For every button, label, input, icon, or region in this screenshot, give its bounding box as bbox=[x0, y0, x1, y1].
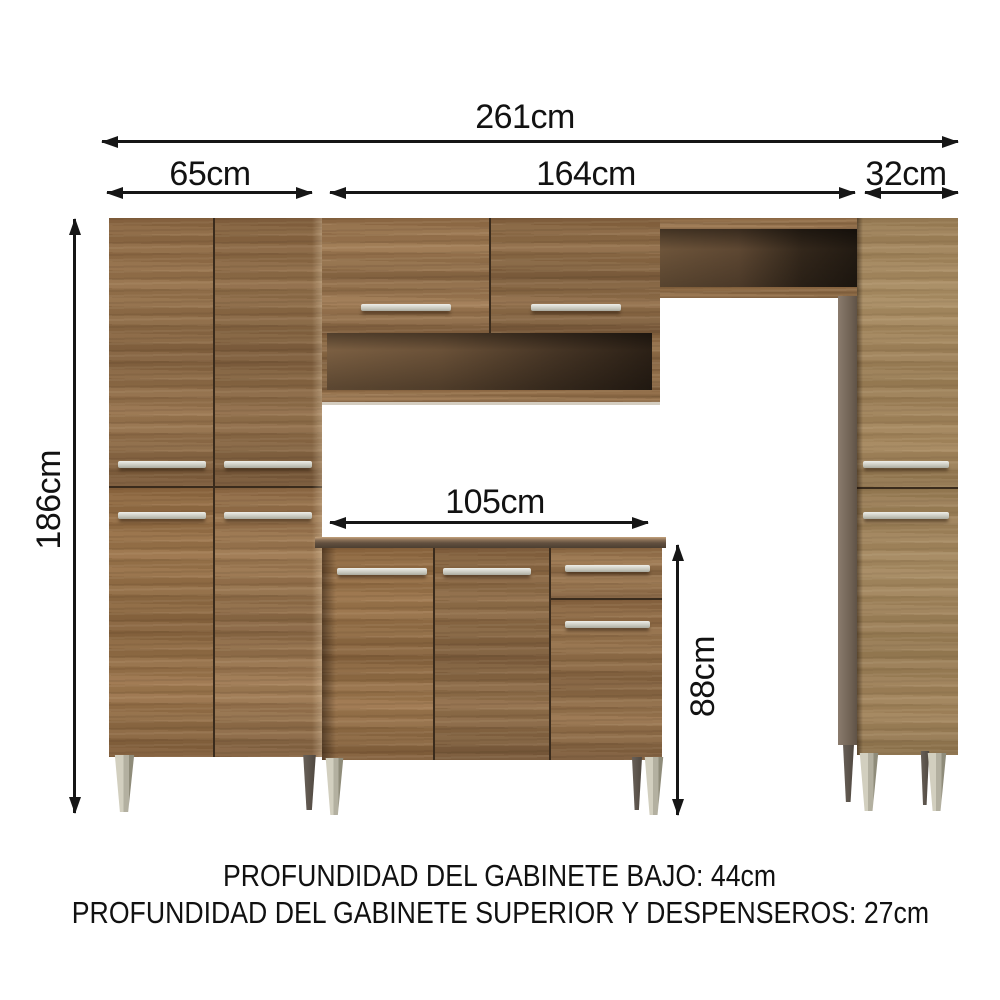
drawer-handle bbox=[565, 565, 650, 572]
cabinet-leg bbox=[842, 745, 855, 802]
left-cabinet-door-bottom-right bbox=[215, 488, 322, 757]
left-cabinet-door-top-left bbox=[109, 218, 213, 486]
door-handle bbox=[337, 568, 427, 575]
dimension-arrow-total-width bbox=[102, 140, 958, 143]
dimension-label-base-cabinet-height: 88cm bbox=[684, 636, 723, 717]
depth-note-base-text: PROFUNDIDAD DEL GABINETE BAJO: 44cm bbox=[223, 860, 776, 891]
dimension-label-left-cabinet-width: 65cm bbox=[110, 157, 310, 191]
dimension-label-cabinet-height-wrap: 186cm bbox=[28, 437, 70, 562]
niche-bottom-panel bbox=[660, 287, 857, 298]
door-handle bbox=[361, 304, 451, 311]
door-handle bbox=[863, 461, 949, 468]
cabinet-leg bbox=[926, 753, 948, 811]
dimension-arrow-right-cabinet-width bbox=[865, 191, 958, 194]
door-handle bbox=[118, 461, 206, 468]
base-cabinet-drawer bbox=[551, 548, 662, 598]
dimension-label-base-cabinet-height-wrap: 88cm bbox=[682, 617, 724, 737]
right-cabinet-edge-shadow bbox=[857, 218, 863, 755]
base-cabinet-door-left bbox=[322, 548, 433, 760]
depth-note-upper: PROFUNDIDAD DEL GABINETE SUPERIOR Y DESP… bbox=[0, 897, 1000, 928]
dimension-arrow-base-cabinet-width bbox=[330, 521, 648, 524]
cabinet-leg bbox=[631, 757, 643, 810]
upper-cabinet-door-left bbox=[322, 218, 489, 333]
dimension-label-right-cabinet-width: 32cm bbox=[806, 157, 1000, 191]
door-handle bbox=[224, 461, 312, 468]
dimension-arrow-left-cabinet-width bbox=[107, 191, 312, 194]
top-open-niche bbox=[660, 218, 857, 298]
base-cabinet-left-shadow bbox=[322, 548, 336, 760]
cabinet-leg bbox=[113, 755, 136, 812]
cabinet-leg bbox=[858, 753, 880, 811]
door-handle bbox=[224, 512, 312, 519]
right-cabinet-door-top bbox=[857, 218, 958, 487]
kitchen-cabinet-dimension-diagram: 261cm 65cm 164cm 32cm 186cm 105cm 88cm bbox=[0, 0, 1000, 1000]
niche-top-panel bbox=[660, 218, 857, 229]
shelf-bottom-edge bbox=[322, 402, 660, 405]
dimension-arrow-cabinet-height bbox=[73, 219, 76, 813]
depth-note-base: PROFUNDIDAD DEL GABINETE BAJO: 44cm bbox=[0, 860, 1000, 891]
cabinet-leg bbox=[324, 758, 345, 815]
dimension-label-cabinet-height: 186cm bbox=[30, 450, 69, 550]
dimension-arrow-base-cabinet-height bbox=[676, 545, 679, 815]
cabinet-leg bbox=[643, 757, 665, 815]
left-cabinet-door-top-right bbox=[215, 218, 322, 486]
door-handle bbox=[863, 512, 949, 519]
right-cabinet-side-panel bbox=[838, 296, 857, 745]
door-handle bbox=[118, 512, 206, 519]
base-cabinet-door-middle bbox=[435, 548, 549, 760]
right-cabinet-door-bottom bbox=[857, 489, 958, 755]
door-handle bbox=[531, 304, 621, 311]
base-cabinet-countertop bbox=[315, 537, 666, 548]
upper-wall-cabinet bbox=[322, 218, 660, 333]
depth-note-upper-text: PROFUNDIDAD DEL GABINETE SUPERIOR Y DESP… bbox=[71, 897, 928, 928]
left-pantry-cabinet bbox=[109, 218, 322, 757]
dimension-label-center-section-width: 164cm bbox=[486, 157, 686, 191]
door-handle bbox=[443, 568, 531, 575]
base-cabinet bbox=[322, 548, 662, 760]
dimension-label-base-cabinet-width: 105cm bbox=[395, 485, 595, 519]
upper-cabinet-door-right bbox=[491, 218, 660, 333]
shelf-right-edge bbox=[652, 333, 660, 390]
dimension-arrow-center-section-width bbox=[330, 191, 855, 194]
niche-interior bbox=[660, 229, 857, 287]
left-cabinet-door-bottom-left bbox=[109, 488, 213, 757]
cabinet-leg bbox=[302, 755, 317, 810]
left-cabinet-side-highlight bbox=[312, 218, 322, 757]
right-pantry-cabinet bbox=[857, 218, 958, 755]
shelf-bottom-panel bbox=[322, 390, 660, 402]
door-handle bbox=[565, 621, 650, 628]
dimension-label-total-width: 261cm bbox=[425, 100, 625, 134]
shelf-interior bbox=[327, 333, 652, 390]
upper-open-shelf bbox=[322, 333, 660, 402]
